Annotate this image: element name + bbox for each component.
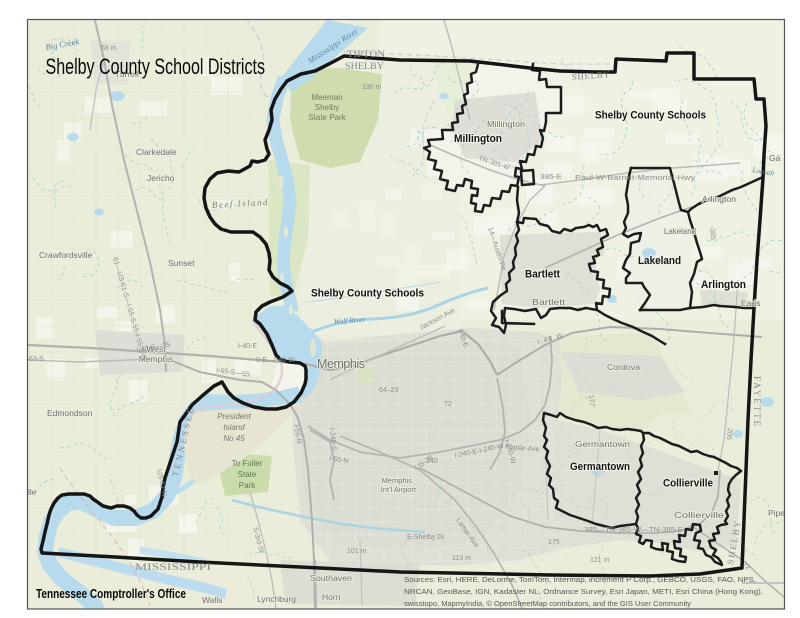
svg-text:175: 175	[548, 539, 560, 546]
svg-text:TIPTON: TIPTON	[347, 49, 386, 59]
svg-text:President: President	[217, 412, 252, 421]
svg-text:Walls: Walls	[202, 595, 222, 605]
svg-text:Lynchburg: Lynchburg	[257, 594, 296, 604]
svg-text:SHELBY: SHELBY	[345, 61, 385, 71]
svg-text:State Park: State Park	[308, 113, 346, 122]
svg-text:I-40-E: I-40-E	[238, 343, 257, 350]
svg-text:Arlington: Arlington	[702, 194, 736, 204]
svg-text:64–23: 64–23	[379, 387, 399, 394]
svg-text:Shelby County Schools: Shelby County Schools	[311, 288, 424, 300]
svg-text:Germantown: Germantown	[575, 439, 630, 449]
svg-text:E-Shelby Dr: E-Shelby Dr	[407, 534, 445, 541]
svg-text:Meeman: Meeman	[311, 93, 342, 102]
svg-text:Shelby County Schools: Shelby County Schools	[595, 110, 706, 122]
svg-text:205: 205	[725, 428, 733, 440]
svg-text:Lakeland: Lakeland	[664, 226, 696, 236]
svg-text:Crawfordsville: Crawfordsville	[39, 250, 93, 260]
svg-text:Clarkedale: Clarkedale	[136, 147, 177, 157]
svg-text:Southaven: Southaven	[310, 573, 352, 583]
svg-text:Int'l Airport: Int'l Airport	[381, 485, 417, 494]
svg-text:385—TN-385-W—TN-385-E: 385—TN-385-W—TN-385-E	[584, 527, 683, 534]
svg-text:Tennessee Comptroller's Office: Tennessee Comptroller's Office	[36, 586, 186, 601]
svg-text:0-E—I-40-W: 0-E—I-40-W	[256, 357, 295, 364]
svg-text:385-E: 385-E	[540, 174, 562, 181]
svg-text:Millington: Millington	[454, 133, 502, 145]
svg-text:Germantown: Germantown	[570, 461, 630, 473]
svg-text:177: 177	[587, 395, 595, 407]
svg-text:Horn: Horn	[322, 592, 341, 602]
svg-text:Park: Park	[239, 481, 256, 490]
svg-text:Lakeland: Lakeland	[638, 255, 681, 267]
svg-text:Collierville: Collierville	[674, 510, 724, 520]
svg-text:Collierville: Collierville	[663, 478, 713, 490]
svg-text:72: 72	[444, 401, 452, 408]
svg-text:NRCAN, GeoBase, IGN, Kadaster: NRCAN, GeoBase, IGN, Kadaster NL, Ordnan…	[404, 587, 763, 596]
svg-text:Shelby: Shelby	[315, 103, 339, 112]
svg-text:101 m: 101 m	[347, 548, 367, 555]
svg-text:Bartlett: Bartlett	[532, 297, 566, 307]
svg-text:To Fuller: To Fuller	[232, 459, 263, 468]
svg-text:Eads: Eads	[741, 298, 760, 308]
svg-text:Bartlett: Bartlett	[525, 269, 560, 281]
svg-text:68 m: 68 m	[101, 45, 117, 52]
svg-text:No 45: No 45	[223, 434, 245, 443]
svg-text:Millington: Millington	[487, 119, 525, 129]
svg-text:Arlington: Arlington	[701, 279, 746, 291]
svg-text:Paul-W-Barrett-Memorial-Hwy: Paul-W-Barrett-Memorial-Hwy	[575, 175, 696, 182]
svg-text:MISSISSIPPI: MISSISSIPPI	[135, 562, 211, 572]
svg-text:121 m: 121 m	[590, 557, 610, 564]
svg-text:Cordova: Cordova	[607, 362, 640, 372]
svg-text:swisstopo, MapmyIndia, © OpenS: swisstopo, MapmyIndia, © OpenStreetMap c…	[404, 599, 691, 608]
svg-text:Shelby County School Districts: Shelby County School Districts	[46, 54, 266, 79]
svg-text:Edmondson: Edmondson	[47, 408, 93, 418]
svg-text:lle: lle	[28, 487, 37, 497]
svg-text:Sunset: Sunset	[168, 258, 195, 268]
svg-text:-385: -385	[708, 226, 716, 241]
svg-text:Memphis: Memphis	[317, 357, 365, 371]
svg-text:Jericho: Jericho	[147, 173, 175, 183]
svg-text:Sources: Esri, HERE, DeLorme,: Sources: Esri, HERE, DeLorme, TomTom, In…	[404, 575, 756, 584]
svg-text:State: State	[238, 470, 257, 479]
svg-text:Pipe: Pipe	[768, 508, 785, 518]
svg-text:Island: Island	[223, 423, 245, 432]
svg-text:113 m: 113 m	[452, 555, 471, 562]
svg-text:Ga: Ga	[769, 153, 781, 163]
svg-text:130 m: 130 m	[362, 84, 382, 91]
svg-text:Memphis: Memphis	[382, 476, 413, 485]
